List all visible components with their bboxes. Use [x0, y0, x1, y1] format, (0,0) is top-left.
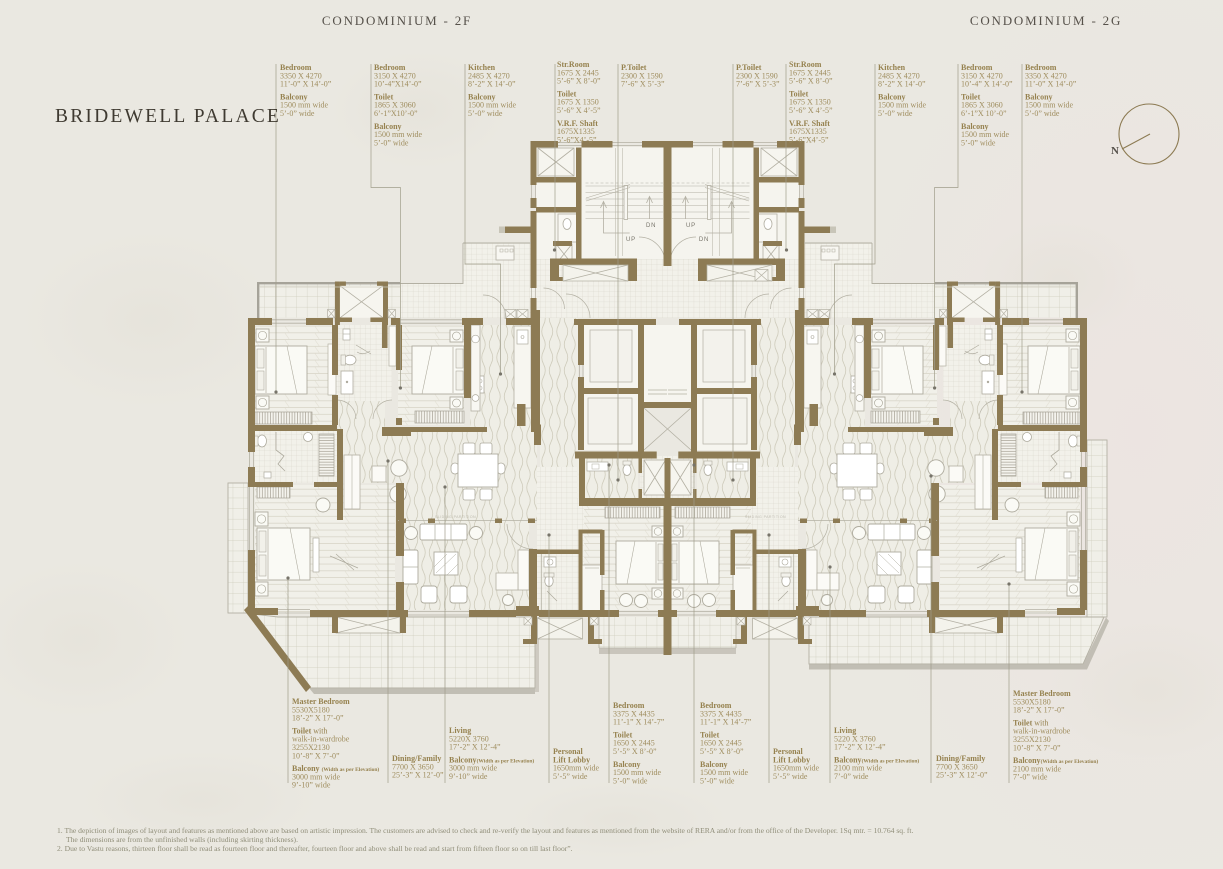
svg-text:The dimensions are from the un: The dimensions are from the unfinished w…: [66, 835, 298, 844]
svg-text:DN: DN: [646, 223, 656, 229]
svg-text:5’-0” wide: 5’-0” wide: [613, 776, 648, 785]
svg-text:N: N: [1111, 145, 1119, 157]
svg-text:7’-0” wide: 7’-0” wide: [1013, 773, 1048, 782]
svg-text:5’-0” wide: 5’-0” wide: [700, 776, 735, 785]
svg-text:5’-5” wide: 5’-5” wide: [553, 772, 588, 781]
svg-text:5’-6” X 4’-5”: 5’-6” X 4’-5”: [557, 106, 601, 115]
svg-text:2. Due to Vastu reasons, thirt: 2. Due to Vastu reasons, thirteen floor …: [57, 844, 573, 853]
svg-text:17’-2” X 12’-4”: 17’-2” X 12’-4”: [834, 743, 886, 752]
svg-text:5’-0” wide: 5’-0” wide: [961, 138, 996, 147]
svg-text:7’-6” X 5’-3”: 7’-6” X 5’-3”: [621, 80, 665, 89]
svg-text:11’-1” X 14’-7”: 11’-1” X 14’-7”: [700, 718, 752, 727]
svg-text:UP: UP: [686, 223, 696, 229]
svg-text:11’-1” X 14’-7”: 11’-1” X 14’-7”: [613, 718, 665, 727]
svg-text:10’-4” X 14’-0”: 10’-4” X 14’-0”: [961, 80, 1013, 89]
svg-text:5’-0” wide: 5’-0” wide: [468, 109, 503, 118]
svg-text:8’-2” X 14’-0”: 8’-2” X 14’-0”: [468, 80, 516, 89]
svg-text:9’-10” wide: 9’-10” wide: [449, 772, 488, 781]
svg-text:18’-2” X 17’-0”: 18’-2” X 17’-0”: [1013, 706, 1065, 715]
svg-text:10’-8” X 7’-0”: 10’-8” X 7’-0”: [292, 751, 340, 760]
svg-text:5’-6”X4’-5”: 5’-6”X4’-5”: [789, 135, 829, 144]
svg-text:6’-1”X 10’-0”: 6’-1”X 10’-0”: [961, 109, 1007, 118]
svg-text:6’-1”X10’-0”: 6’-1”X10’-0”: [374, 109, 418, 118]
svg-text:1. The depiction of images of: 1. The depiction of images of layout and…: [57, 826, 914, 835]
svg-text:5’-6” X 4’-5”: 5’-6” X 4’-5”: [789, 106, 833, 115]
svg-text:5’-6” X 8’-0”: 5’-6” X 8’-0”: [789, 77, 833, 86]
svg-text:5’-5” X 8’-0”: 5’-5” X 8’-0”: [700, 747, 744, 756]
svg-text:5’-6”X4’-5”: 5’-6”X4’-5”: [557, 135, 597, 144]
svg-text:SLIDING PARTITION: SLIDING PARTITION: [745, 515, 786, 519]
svg-text:5’-0” wide: 5’-0” wide: [878, 109, 913, 118]
svg-text:10’-8” X 7’-0”: 10’-8” X 7’-0”: [1013, 743, 1061, 752]
svg-text:5’-0” wide: 5’-0” wide: [280, 109, 315, 118]
svg-text:SLIDING PARTITION: SLIDING PARTITION: [435, 515, 476, 519]
svg-text:25’-3” X 12’-0”: 25’-3” X 12’-0”: [392, 771, 444, 780]
svg-text:5’-0” wide: 5’-0” wide: [374, 138, 409, 147]
svg-text:11’-0” X 14’-0”: 11’-0” X 14’-0”: [1025, 80, 1077, 89]
svg-text:5’-6” X 8’-0”: 5’-6” X 8’-0”: [557, 77, 601, 86]
svg-text:BRIDEWELL PALACE: BRIDEWELL PALACE: [55, 106, 281, 127]
svg-text:17’-2” X 12’-4”: 17’-2” X 12’-4”: [449, 743, 501, 752]
svg-text:UP: UP: [626, 237, 636, 243]
svg-text:25’-3” X 12’-0”: 25’-3” X 12’-0”: [936, 771, 988, 780]
svg-text:18’-2” X 17’-0”: 18’-2” X 17’-0”: [292, 714, 344, 723]
svg-text:7’-0” wide: 7’-0” wide: [834, 772, 869, 781]
svg-text:11’-0” X 14’-0”: 11’-0” X 14’-0”: [280, 80, 332, 89]
svg-text:5’-5” wide: 5’-5” wide: [773, 772, 808, 781]
svg-text:CONDOMINIUM - 2F: CONDOMINIUM - 2F: [322, 13, 472, 28]
svg-text:8’-2” X 14’-0”: 8’-2” X 14’-0”: [878, 80, 926, 89]
svg-text:10’-4”X14’-0”: 10’-4”X14’-0”: [374, 80, 422, 89]
svg-text:5’-5” X 8’-0”: 5’-5” X 8’-0”: [613, 747, 657, 756]
svg-text:5’-0” wide: 5’-0” wide: [1025, 109, 1060, 118]
svg-text:7’-6” X 5’-3”: 7’-6” X 5’-3”: [736, 80, 780, 89]
svg-text:DN: DN: [699, 237, 709, 243]
svg-text:CONDOMINIUM - 2G: CONDOMINIUM - 2G: [970, 13, 1122, 28]
svg-text:9’-10” wide: 9’-10” wide: [292, 781, 331, 790]
